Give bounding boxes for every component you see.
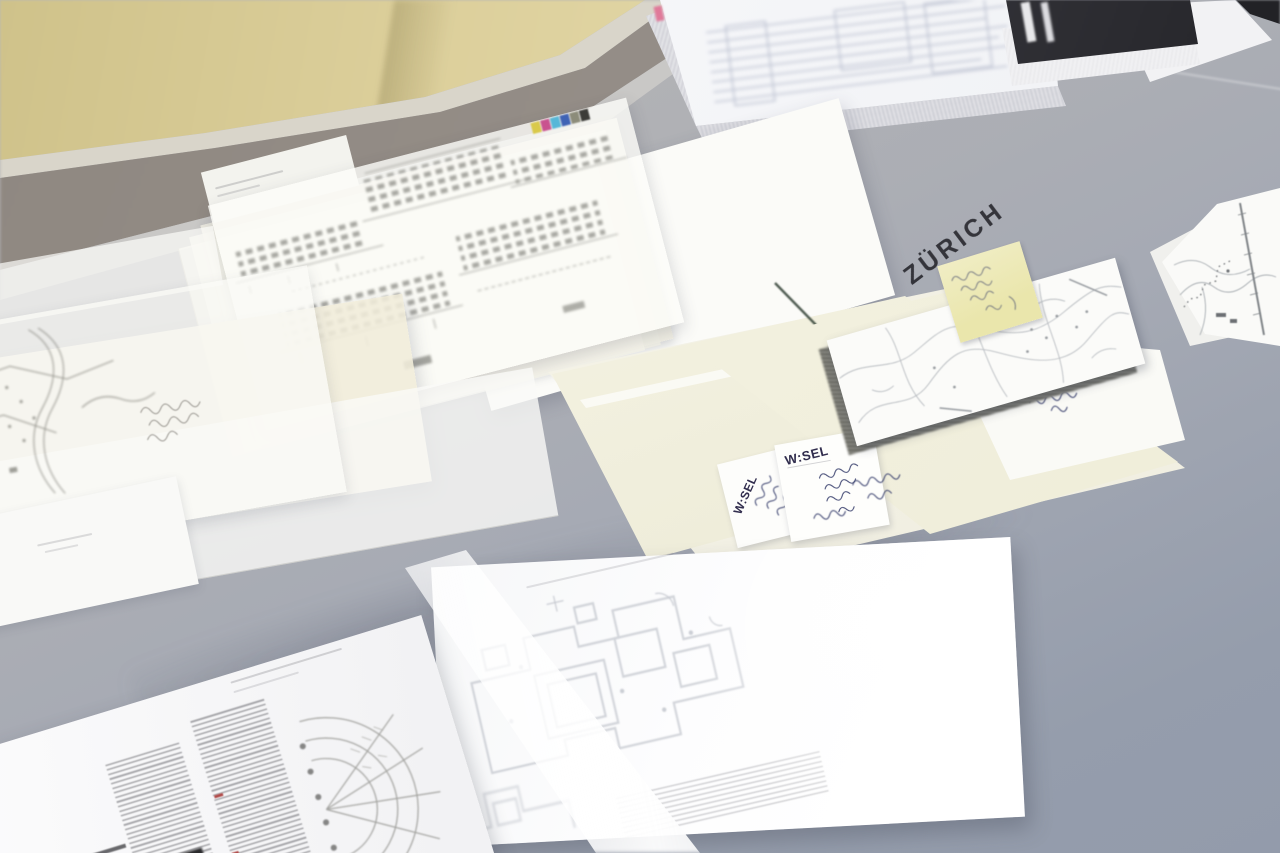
right-map-print bbox=[1170, 195, 1280, 345]
overexposed-highlight bbox=[692, 537, 1025, 833]
left-page-header-2 bbox=[234, 672, 299, 694]
desk-scene: W:SEL W:SEL W:SEL bbox=[0, 0, 1280, 853]
aerial-photo bbox=[0, 848, 255, 853]
article-title-dashes bbox=[15, 844, 126, 853]
sticky-note-writing bbox=[948, 253, 1032, 331]
